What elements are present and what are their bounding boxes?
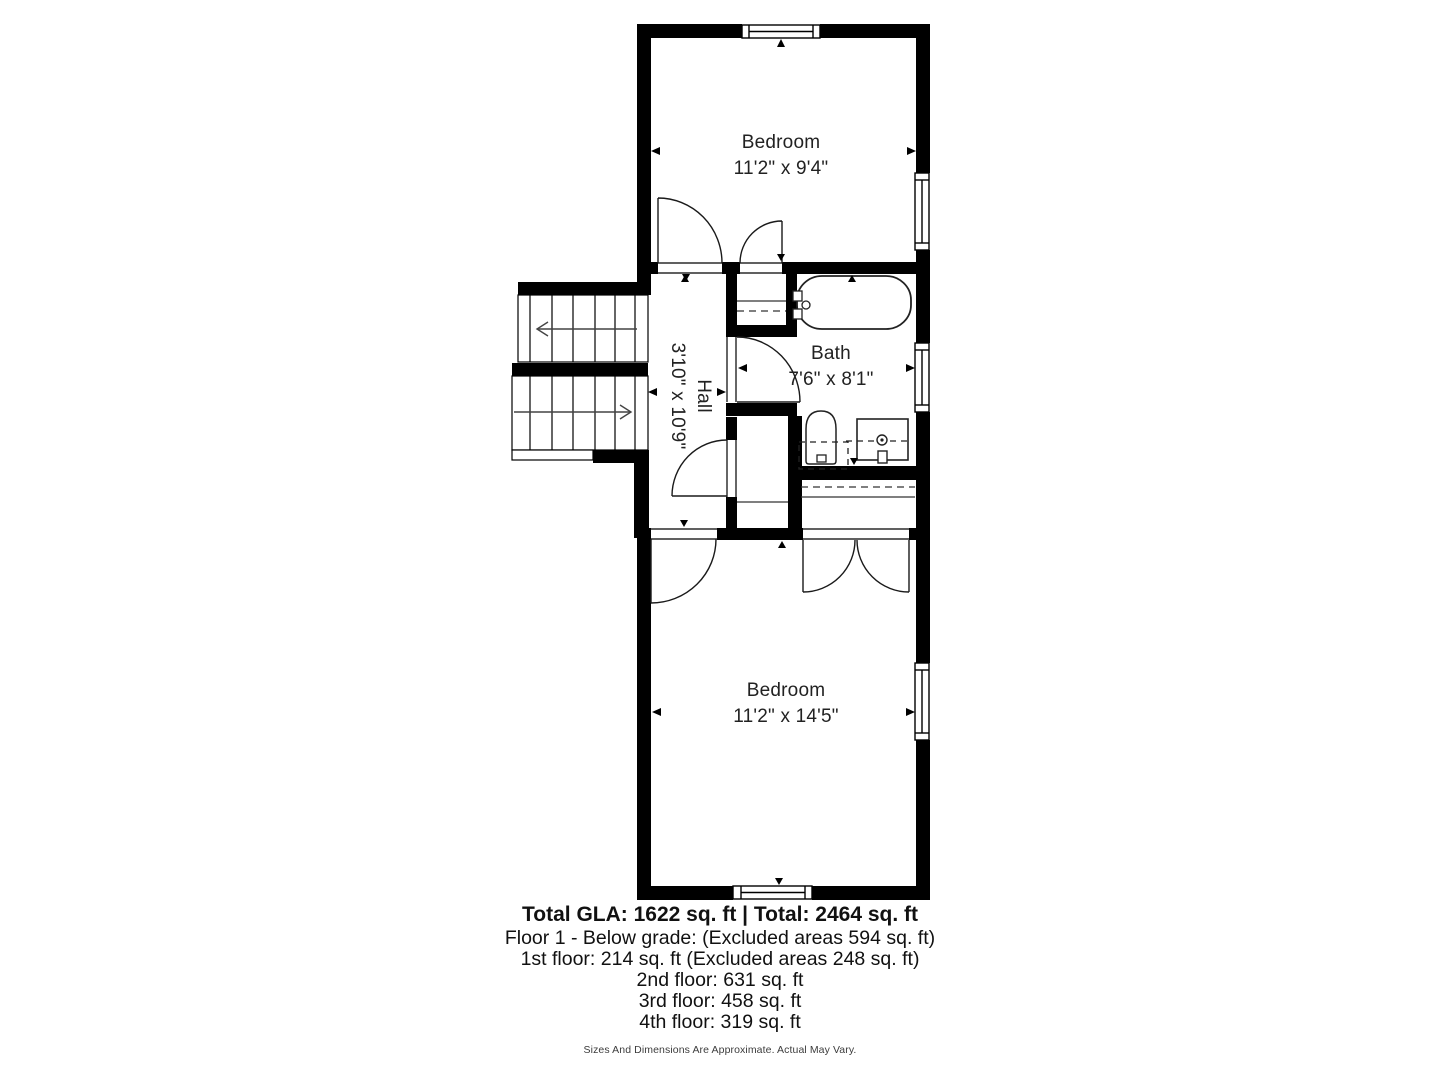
total-area-summary: Total GLA: 1622 sq. ft | Total: 2464 sq.… (0, 903, 1440, 927)
window-bath-right (915, 343, 929, 412)
door-arc-top-bedroom (658, 198, 722, 263)
stair-landing (512, 450, 593, 460)
disclaimer-text: Sizes And Dimensions Are Approximate. Ac… (0, 1044, 1440, 1056)
door-arc-closet-double-right (857, 540, 909, 592)
window-top-bedroom-top (742, 25, 820, 38)
room-label-bath: Bath 7'6" x 8'1" (756, 341, 906, 393)
toilet (799, 411, 848, 469)
room-name: Bedroom (656, 130, 906, 156)
window-top-bedroom-right (915, 173, 929, 250)
room-label-bedroom-bottom: Bedroom 11'2" x 14'5" (656, 678, 916, 730)
sink-faucet (878, 451, 887, 463)
room-label-hall: Hall 3'10" x 10'9" (664, 291, 716, 501)
bathtub (793, 276, 911, 329)
room-dimensions: 11'2" x 14'5" (656, 704, 916, 730)
floor-area-line: 2nd floor: 631 sq. ft (0, 969, 1440, 992)
floor-area-line: 1st floor: 214 sq. ft (Excluded areas 24… (0, 948, 1440, 971)
floor-plan-page: Bedroom 11'2" x 9'4" Hall 3'10" x 10'9" … (0, 0, 1440, 1080)
room-name: Bedroom (656, 678, 916, 704)
tub-faucet-tab (793, 309, 802, 319)
room-dimensions: 11'2" x 9'4" (656, 156, 906, 182)
room-name: Bath (756, 341, 906, 367)
door-arc-top-closet (740, 221, 782, 263)
floor-area-line: 3rd floor: 458 sq. ft (0, 990, 1440, 1013)
staircase (512, 295, 648, 460)
room-dimensions: 7'6" x 8'1" (756, 367, 906, 393)
door-arc-bottom-bedroom (651, 539, 716, 603)
tub-faucet (802, 301, 810, 309)
floor-area-line: Floor 1 - Below grade: (Excluded areas 5… (0, 927, 1440, 950)
stair-flight-lower (512, 376, 648, 450)
room-dimensions: 3'10" x 10'9" (664, 291, 690, 501)
toilet-flush (817, 455, 826, 462)
window-bottom-bedroom-right (915, 663, 929, 740)
room-name: Hall (690, 291, 716, 501)
room-label-bedroom-top: Bedroom 11'2" x 9'4" (656, 130, 906, 182)
floor-area-line: 4th floor: 319 sq. ft (0, 1011, 1440, 1034)
window-bottom-bedroom-bottom (733, 886, 812, 899)
door-arc-closet-double-left (803, 540, 855, 592)
tub-faucet-tab (793, 291, 802, 301)
sink-vanity (846, 419, 908, 463)
